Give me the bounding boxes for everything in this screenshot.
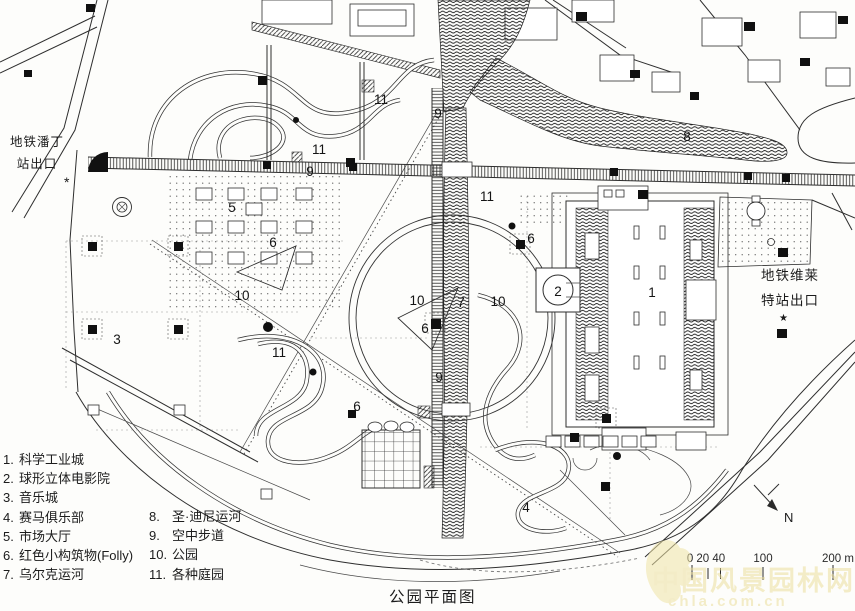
map-label-6: 6 [353,399,361,414]
map-label-1: 1 [648,285,656,300]
map-label-6: 6 [269,235,277,250]
map-label-5: 5 [228,200,236,215]
legend-item: 1.科学工业城 [3,450,133,469]
scale-mid: 100 [753,553,772,565]
map-label-10: 10 [234,288,249,303]
map-label-8: 8 [683,129,691,144]
map-label-10: 10 [490,294,505,309]
canal-bridge [442,403,470,416]
legend-item: 3.音乐城 [3,488,133,507]
scale-right: 200 m [822,553,854,565]
map-label-6: 6 [527,231,535,246]
metro-villette-line2: 特站出口 [743,288,837,313]
map-label-9: 9 [435,370,443,385]
metro-pantin-line2: 站出口 [4,153,70,175]
fountain [113,198,132,217]
legend-item: 9.空中步道 [149,526,241,545]
legend-item: 6.红色小构筑物(Folly) [3,546,133,565]
northeast-plaza [718,196,812,267]
map-label-7: 7 [457,295,465,310]
legend-item: 4.赛马俱乐部 [3,508,133,527]
map-label-11: 11 [312,142,326,157]
canal-bridge [442,162,472,177]
north-arrow: N [754,484,793,525]
legend-item: 7.乌尔克运河 [3,565,133,584]
grid-building [362,421,420,488]
legend-column-2: 8.圣·迪尼运河9.空中步道10.公园11.各种庭园 [149,507,241,584]
metro-villette-label: 地铁维莱 特站出口 [743,263,837,313]
map-label-4: 4 [522,500,530,515]
market-hall-area [166,175,572,308]
map-label-2: 2 [554,284,562,299]
metro-villette-marker [777,329,787,338]
legend-item: 10.公园 [149,545,241,564]
legend-item: 11.各种庭园 [149,565,241,584]
legend-item: 2.球形立体电影院 [3,469,133,488]
map-label-11: 11 [272,345,286,360]
legend-item: 8.圣·迪尼运河 [149,507,241,526]
city-block [358,10,406,26]
watermark-text: 中国风景园林网 [652,566,855,596]
gallery-north-south [432,88,443,488]
metro-pantin-star: * [64,174,69,190]
science-city-building [552,186,728,450]
legend-column-1: 1.科学工业城2.球形立体电影院3.音乐城4.赛马俱乐部5.市场大厅6.红色小构… [3,450,133,584]
map-label-6: 6 [421,321,429,336]
map-label-11: 11 [374,92,388,107]
metro-pantin-line1: 地铁潘丁 [4,131,70,153]
north-label: N [784,510,793,525]
map-label-11: 11 [480,189,494,204]
metro-pantin-label: 地铁潘丁 站出口 [4,131,70,175]
legend-item: 5.市场大厅 [3,527,133,546]
city-block [262,0,332,24]
page-title: 公园平面图 [389,585,477,607]
map-label-9: 9 [434,106,442,121]
watermark: 中国风景园林网 chla.com.cn [646,540,855,610]
park-plan-page: N 0 20 40 100 200 m 中国风景园林网 chla.com.cn … [0,0,855,611]
map-label-10: 10 [409,293,424,308]
scale-left: 0 20 40 [687,553,725,565]
metro-villette-line1: 地铁维莱 [743,263,837,288]
map-label-9: 9 [306,164,314,179]
map-label-3: 3 [113,332,121,347]
metro-villette-star: ★ [779,313,788,324]
watermark-url-text: chla.com.cn [668,593,788,610]
